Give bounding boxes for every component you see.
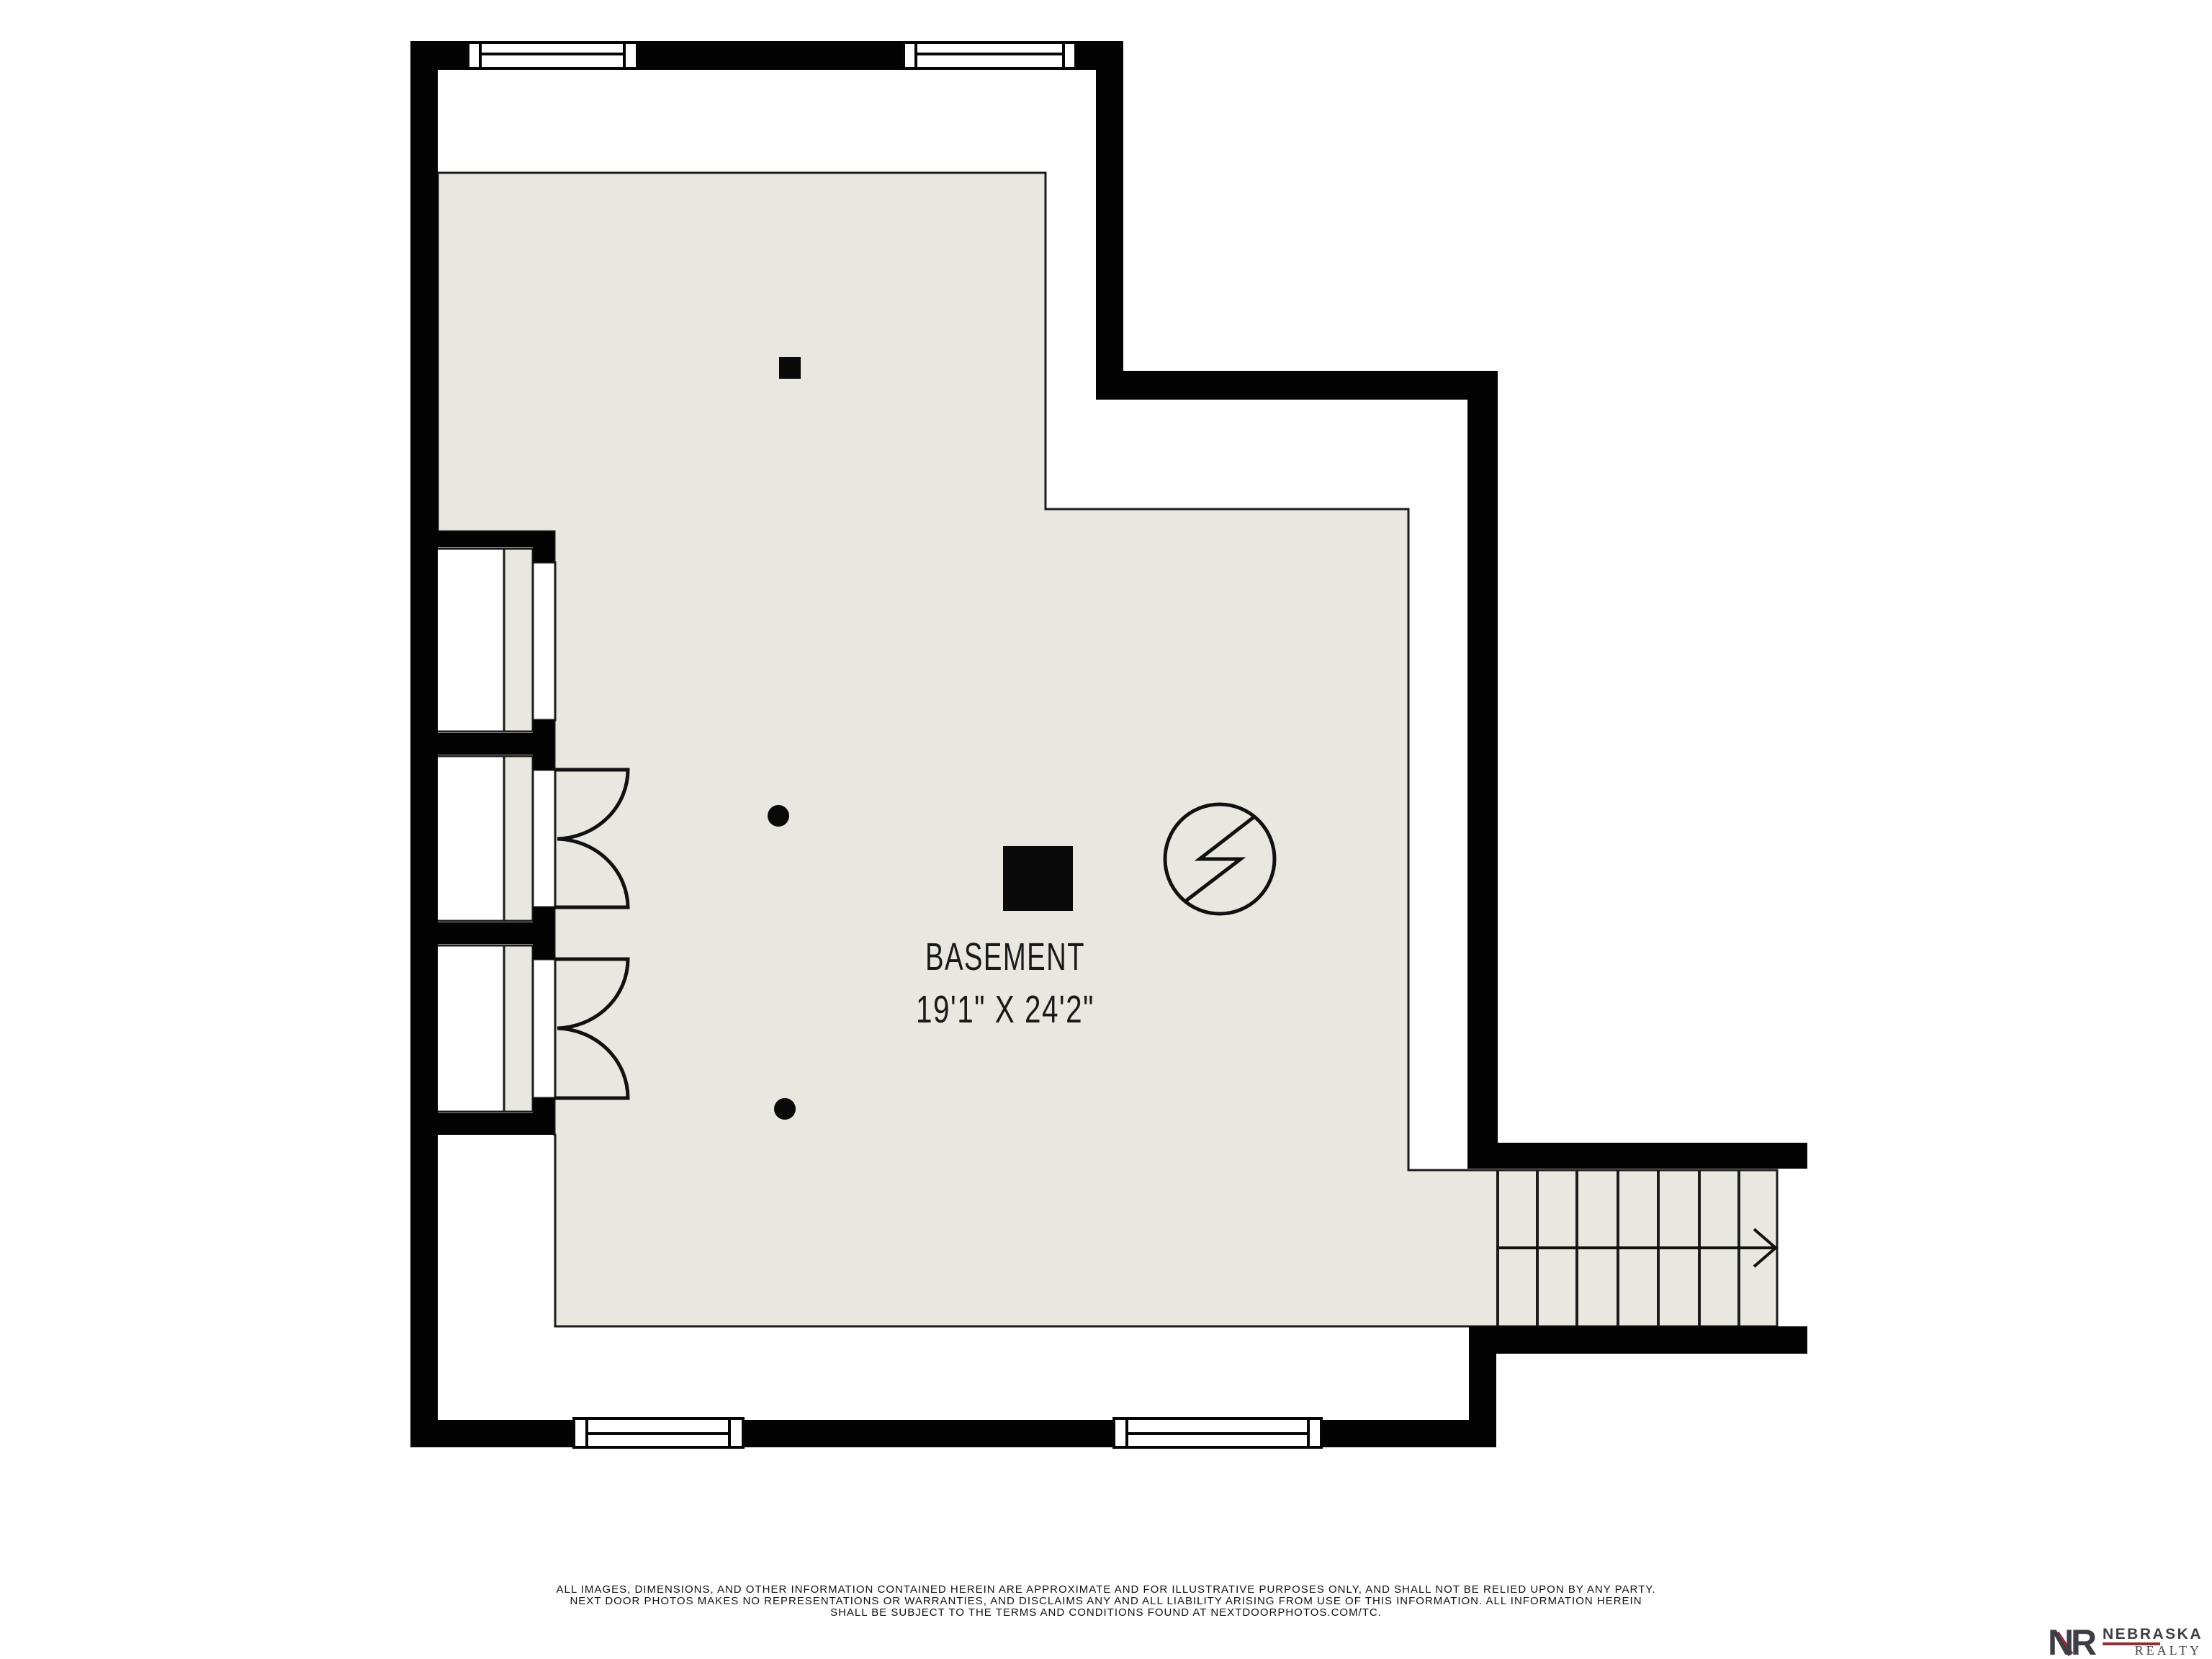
window-bottom-right [1114, 1419, 1321, 1447]
closet-niche-1 [433, 547, 555, 733]
brand-logo: N R NEBRASKA REALTY [2048, 1622, 2203, 1659]
room-dimensions-label: 19'1" X 24'2" [916, 988, 1094, 1031]
wall-left [410, 41, 438, 1447]
wall-stub [533, 944, 554, 959]
wall-band [438, 733, 554, 755]
logo-monogram-r: R [2071, 1622, 2097, 1659]
wall-band [438, 1113, 554, 1135]
disclaimer-line-2: NEXT DOOR PHOTOS MAKES NO REPRESENTATION… [570, 1595, 1642, 1607]
closet-opening [533, 770, 555, 907]
room-name-label: BASEMENT [925, 935, 1085, 979]
wall-right-upper [1096, 41, 1123, 400]
support-post-dot [768, 805, 789, 827]
wall-right-middle [1467, 371, 1498, 1169]
floorplan-canvas: BASEMENT 19'1" X 24'2" ALL IMAGES, DIMEN… [0, 0, 2212, 1659]
wall-stub [533, 907, 554, 922]
support-post-square [779, 357, 801, 379]
wall-stairs-top [1498, 1143, 1807, 1169]
closet-opening [533, 959, 555, 1098]
support-post-dot [774, 1098, 796, 1120]
closet-opening [533, 562, 555, 720]
closet-floor-strip [504, 945, 533, 1112]
logo-brand-name: NEBRASKA [2103, 1626, 2203, 1642]
wall-stairs-left-lower [1469, 1326, 1496, 1447]
disclaimer: ALL IMAGES, DIMENSIONS, AND OTHER INFORM… [556, 1583, 1655, 1619]
window-top-left [468, 42, 637, 68]
wall-step-horizontal [1096, 371, 1498, 400]
window-bottom-left [574, 1419, 743, 1447]
logo-brand-subname: REALTY [2135, 1643, 2202, 1658]
closet-floor-strip [504, 756, 533, 921]
furnace-square [1003, 846, 1073, 911]
wall-stub [533, 720, 554, 733]
disclaimer-line-3: SHALL BE SUBJECT TO THE TERMS AND CONDIT… [830, 1606, 1382, 1619]
logo-monogram-n: N [2048, 1622, 2074, 1659]
wall-stub [533, 547, 554, 562]
disclaimer-line-1: ALL IMAGES, DIMENSIONS, AND OTHER INFORM… [556, 1583, 1655, 1596]
window-top-right [904, 42, 1076, 68]
wall-stub [533, 1098, 554, 1113]
wall-band [438, 531, 554, 547]
wall-band [438, 922, 554, 944]
wall-stairs-bottom [1496, 1326, 1807, 1354]
wall-stub [533, 755, 554, 770]
closet-floor-strip [504, 549, 533, 732]
